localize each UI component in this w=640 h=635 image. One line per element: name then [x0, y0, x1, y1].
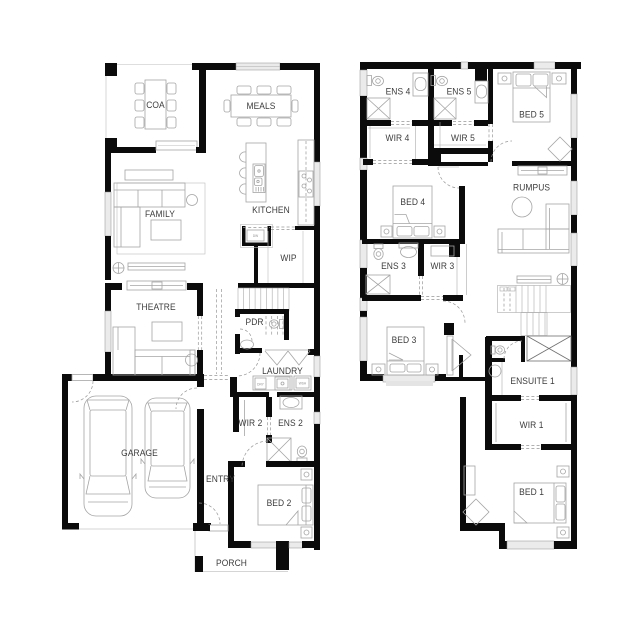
svg-text:WIR 5: WIR 5 — [451, 133, 475, 144]
svg-text:WIR 2: WIR 2 — [239, 418, 263, 429]
svg-text:BED 1: BED 1 — [519, 487, 544, 498]
svg-text:WIR 1: WIR 1 — [520, 420, 544, 431]
svg-text:GARAGE: GARAGE — [121, 448, 158, 459]
svg-text:ENS 5: ENS 5 — [447, 86, 472, 97]
svg-text:ENS 4: ENS 4 — [386, 86, 411, 97]
svg-text:MEALS: MEALS — [246, 101, 275, 112]
svg-text:WIR 3: WIR 3 — [430, 261, 454, 272]
svg-text:PORCH: PORCH — [216, 558, 247, 569]
svg-text:ENS 3: ENS 3 — [381, 261, 406, 272]
svg-text:BED 2: BED 2 — [267, 498, 292, 509]
svg-text:DW: DW — [253, 234, 258, 238]
svg-text:WIP: WIP — [280, 253, 296, 264]
svg-text:RUMPUS: RUMPUS — [513, 182, 550, 193]
svg-text:DRY: DRY — [257, 383, 265, 387]
svg-text:PDR: PDR — [245, 317, 263, 328]
svg-text:FAMILY: FAMILY — [145, 209, 175, 220]
svg-text:LAUNDRY: LAUNDRY — [262, 366, 303, 377]
svg-text:ENTRY: ENTRY — [206, 474, 235, 485]
svg-text:WIR 4: WIR 4 — [386, 133, 410, 144]
svg-text:KITCHEN: KITCHEN — [252, 205, 290, 216]
svg-text:WSH: WSH — [299, 382, 307, 386]
svg-text:ENS 2: ENS 2 — [278, 418, 303, 429]
svg-text:BED 5: BED 5 — [519, 109, 544, 120]
svg-text:COA: COA — [146, 100, 165, 111]
svg-text:THEATRE: THEATRE — [136, 302, 175, 313]
svg-text:ENSUITE 1: ENSUITE 1 — [510, 376, 554, 387]
svg-text:BED 3: BED 3 — [392, 335, 417, 346]
svg-text:BED 4: BED 4 — [400, 197, 425, 208]
